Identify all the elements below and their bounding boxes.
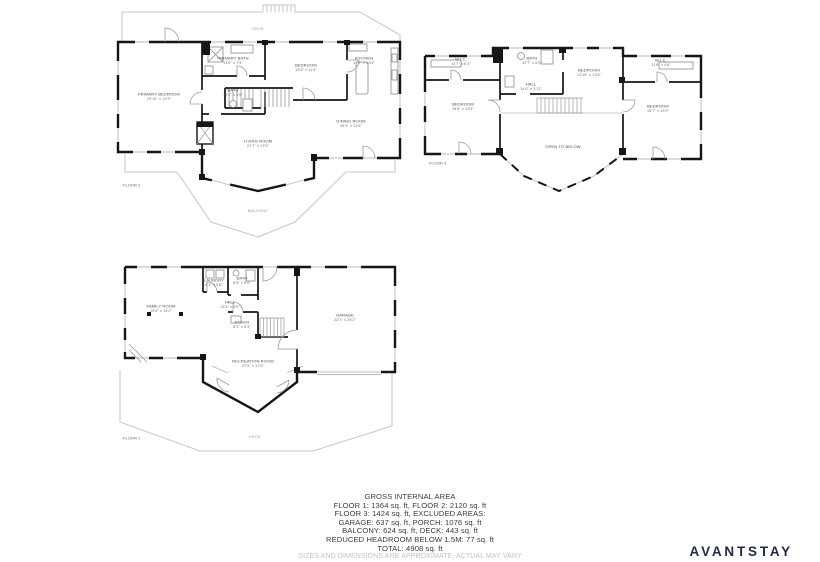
room-label: DECK: [249, 435, 261, 440]
room-label: W.I.C.11'7" x 6'4": [451, 57, 471, 66]
room-label: LAUNDRY6'1" x 5'8": [204, 278, 224, 287]
room-label: OPEN TO BELOW: [545, 145, 580, 150]
room-label: GARAGE23'1" x 26'2": [334, 313, 356, 322]
fixtures: [205, 44, 398, 111]
room-label: FAMILY ROOM19'6" x 14'2": [147, 304, 176, 313]
room-label: BATH12'7" x 6'9": [522, 56, 542, 65]
room-label: HALL13'6" x 4'9": [220, 300, 240, 309]
wall-posts: [493, 47, 626, 155]
room-label: HALL14'6" x 3'11": [520, 82, 542, 91]
room-label: BEDROOM15'7" x 13'9": [647, 104, 669, 113]
room-label: KITCHEN17'2" x 13'6": [353, 56, 375, 65]
room-label: DECK: [252, 27, 264, 32]
room-label: BATH11'2" x 6'5": [223, 88, 243, 97]
room-label: PRIMARY BEDROOM19'10" x 13'9": [138, 92, 180, 101]
stairs: [537, 98, 583, 113]
floor-plan-3: W.I.C.11'7" x 6'4" BATH12'7" x 6'9" BEDR…: [423, 42, 703, 208]
room-label: PRIMARY BATH13'6" x 7'9": [217, 56, 248, 65]
room-label: RECREATION ROOM27'9" x 17'5": [232, 359, 274, 368]
floor-label: FLOOR 1: [123, 436, 140, 440]
floor-label: FLOOR 2: [123, 183, 140, 187]
room-label: BEDROOM15'6" x 13'4": [452, 102, 474, 111]
fireplace: [197, 122, 213, 144]
exterior-walls: [125, 267, 395, 412]
avantstay-logo: AVANTSTAY: [690, 544, 793, 559]
floor-plan-2: DECK PRIMARY BATH13'6" x 7'9" BEDROOM13'…: [113, 4, 407, 246]
room-label: BEDROOM13'10" x 13'6": [577, 68, 601, 77]
bay-outline: [500, 154, 623, 191]
room-label: W.I.C.11'8" x 4'6": [651, 58, 671, 67]
room-label: BATH8'5" x 5'0": [233, 276, 251, 285]
room-label: FOYER8'2" x 6'3": [233, 320, 251, 329]
room-label: DINING ROOM19'4" x 13'6": [336, 119, 365, 128]
room-label: LIVING ROOM21'7" x 17'6": [244, 139, 272, 148]
floor-label: FLOOR 3: [429, 161, 446, 165]
floor-plan-1: FAMILY ROOM19'6" x 14'2" LAUNDRY6'1" x 5…: [111, 252, 408, 460]
floor-plan-1-drawing: [111, 252, 408, 460]
bay-windows: [500, 154, 623, 191]
room-label: BALCONY: [248, 209, 268, 214]
stairs: [260, 318, 284, 337]
room-label: BEDROOM13'5" x 11'6": [295, 63, 317, 72]
corner-fireplace: [129, 344, 147, 362]
